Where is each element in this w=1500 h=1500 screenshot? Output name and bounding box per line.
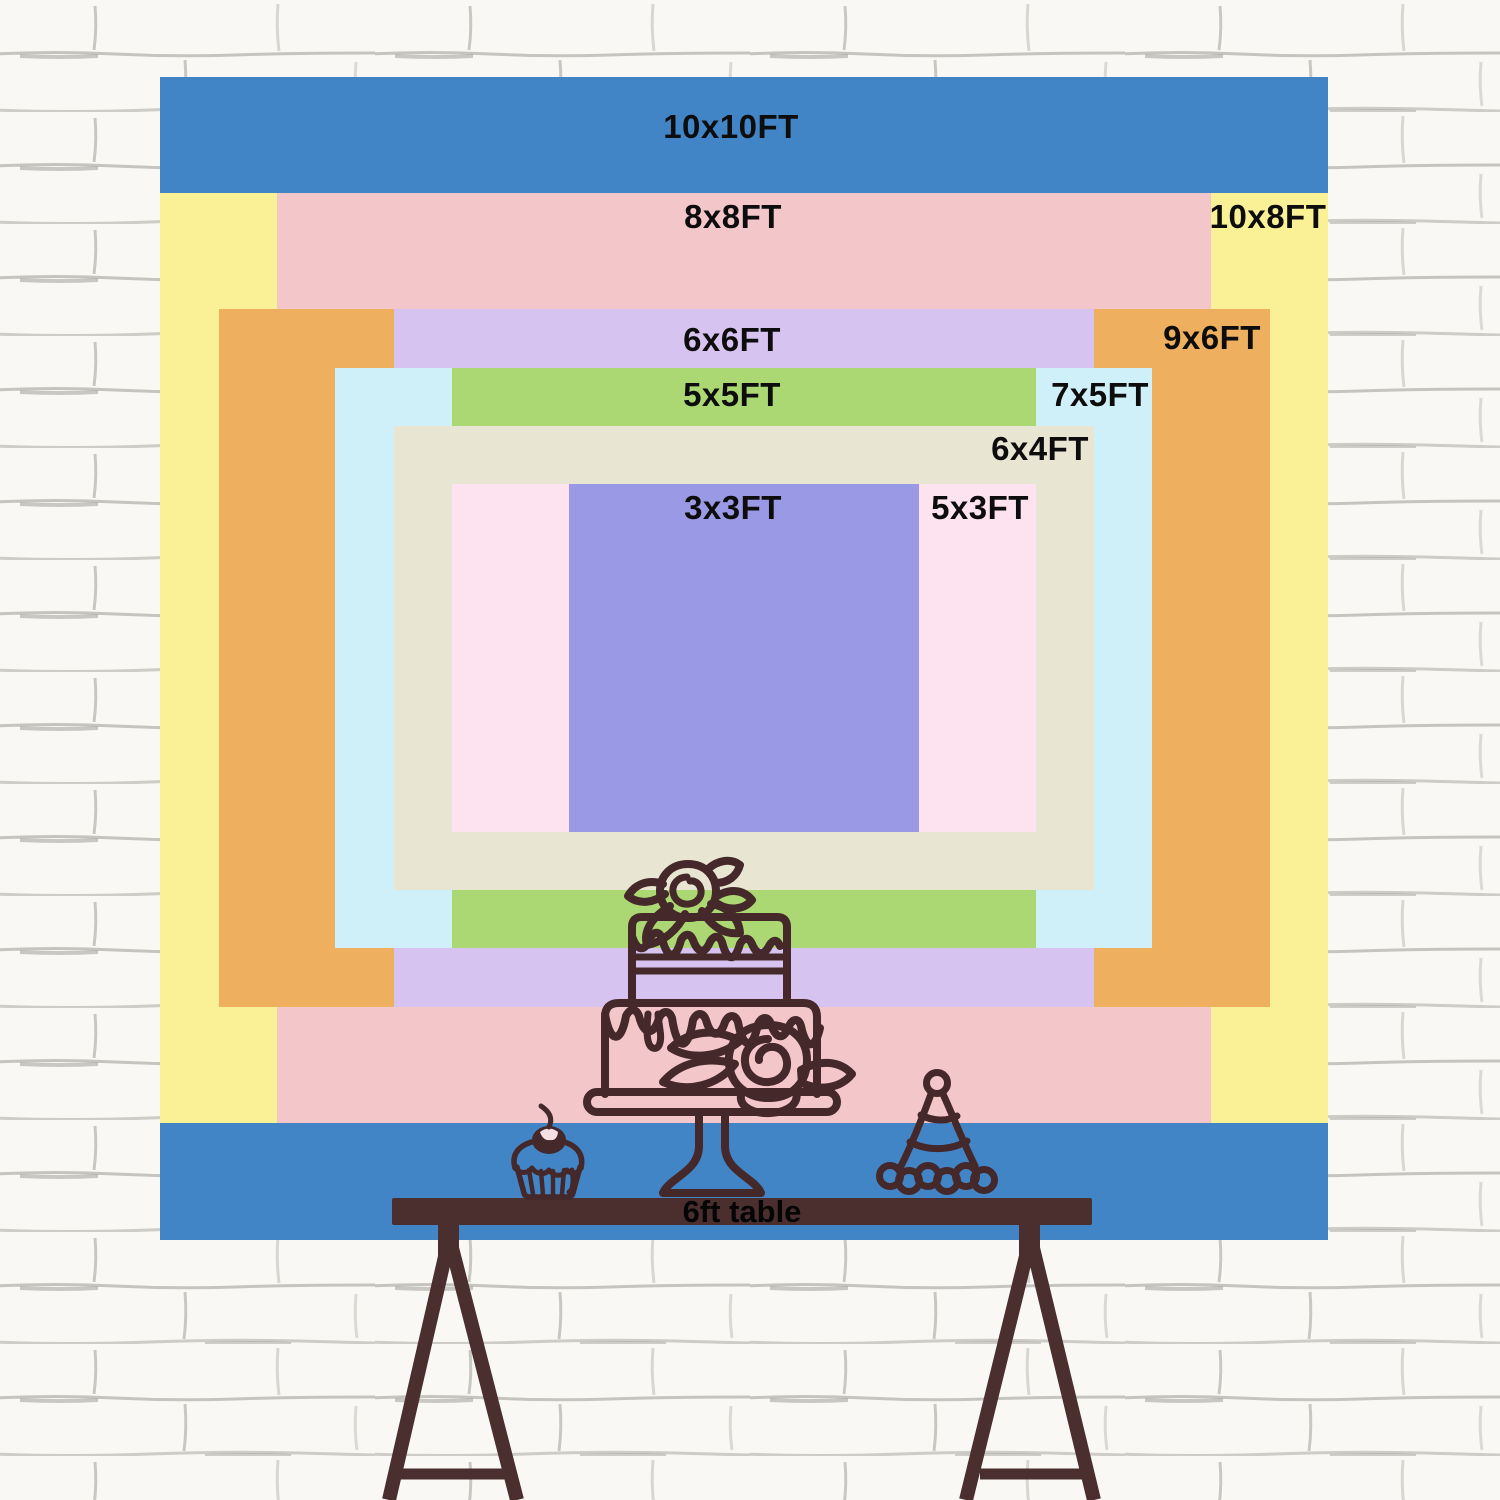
size-label-5x3ft: 5x3FT [931,489,1029,527]
size-label-6x4ft: 6x4FT [991,430,1089,468]
size-label-8x8ft: 8x8FT [684,198,782,236]
size-label-10x8ft: 10x8FT [1210,198,1327,236]
size-label-9x6ft: 9x6FT [1163,319,1261,357]
backdrop-size-chart: 10x10FT10x8FT8x8FT9x6FT6x6FT7x5FT5x5FT6x… [0,0,1500,1500]
size-labels-layer: 10x10FT10x8FT8x8FT9x6FT6x6FT7x5FT5x5FT6x… [0,0,1500,1500]
size-label-10x10ft: 10x10FT [663,108,799,146]
size-label-5x5ft: 5x5FT [683,376,781,414]
size-label-7x5ft: 7x5FT [1051,376,1149,414]
size-label-6x6ft: 6x6FT [683,321,781,359]
size-label-3x3ft: 3x3FT [684,489,782,527]
table-size-label: 6ft table [683,1194,802,1230]
